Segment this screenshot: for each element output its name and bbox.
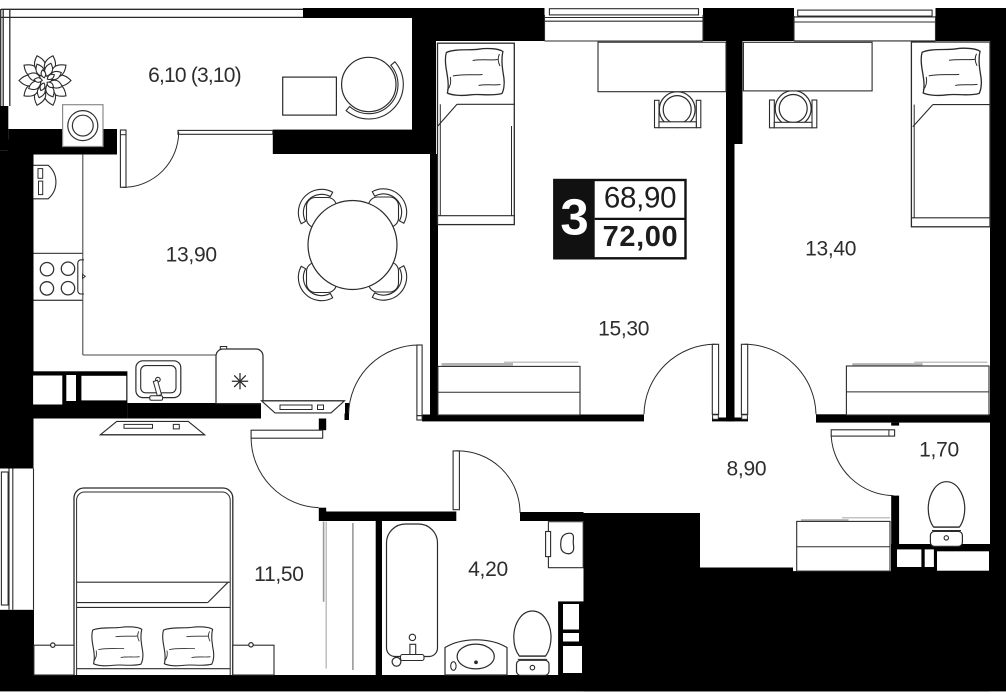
svg-text:1,70: 1,70 [919,439,959,462]
svg-text:72,00: 72,00 [603,221,679,253]
svg-text:13,40: 13,40 [805,238,856,261]
svg-text:68,90: 68,90 [604,181,676,214]
svg-text:3: 3 [560,188,588,245]
svg-text:6,10 (3,10): 6,10 (3,10) [148,64,241,87]
svg-text:13,90: 13,90 [166,243,217,266]
svg-text:15,30: 15,30 [598,318,649,341]
svg-text:4,20: 4,20 [468,558,508,581]
svg-text:8,90: 8,90 [727,458,767,481]
svg-text:11,50: 11,50 [254,563,304,586]
